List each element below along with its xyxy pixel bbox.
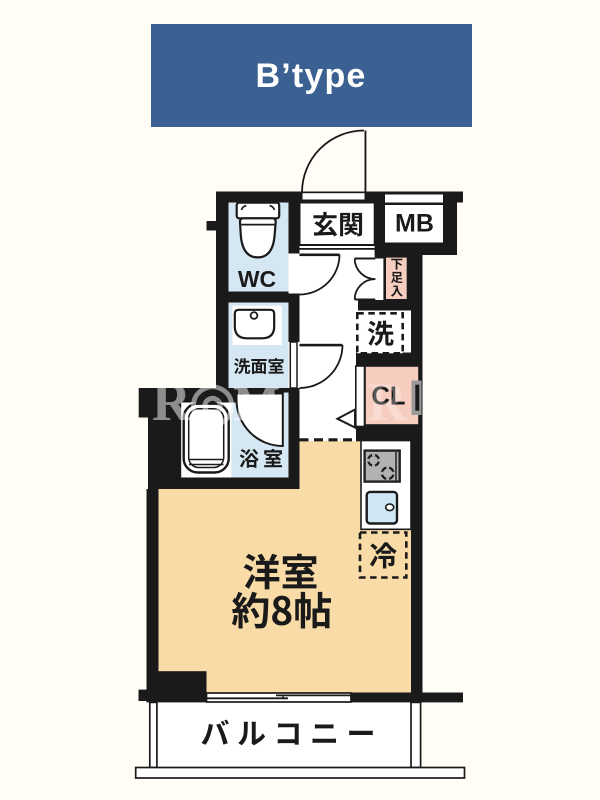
svg-text:R: R — [152, 372, 192, 432]
svg-text:WC: WC — [238, 266, 276, 292]
svg-text:MB: MB — [395, 210, 434, 238]
svg-text:◎: ◎ — [189, 372, 236, 432]
svg-text:B’type: B’type — [255, 57, 366, 95]
svg-text:M: M — [233, 375, 280, 431]
svg-text:R: R — [368, 372, 408, 432]
